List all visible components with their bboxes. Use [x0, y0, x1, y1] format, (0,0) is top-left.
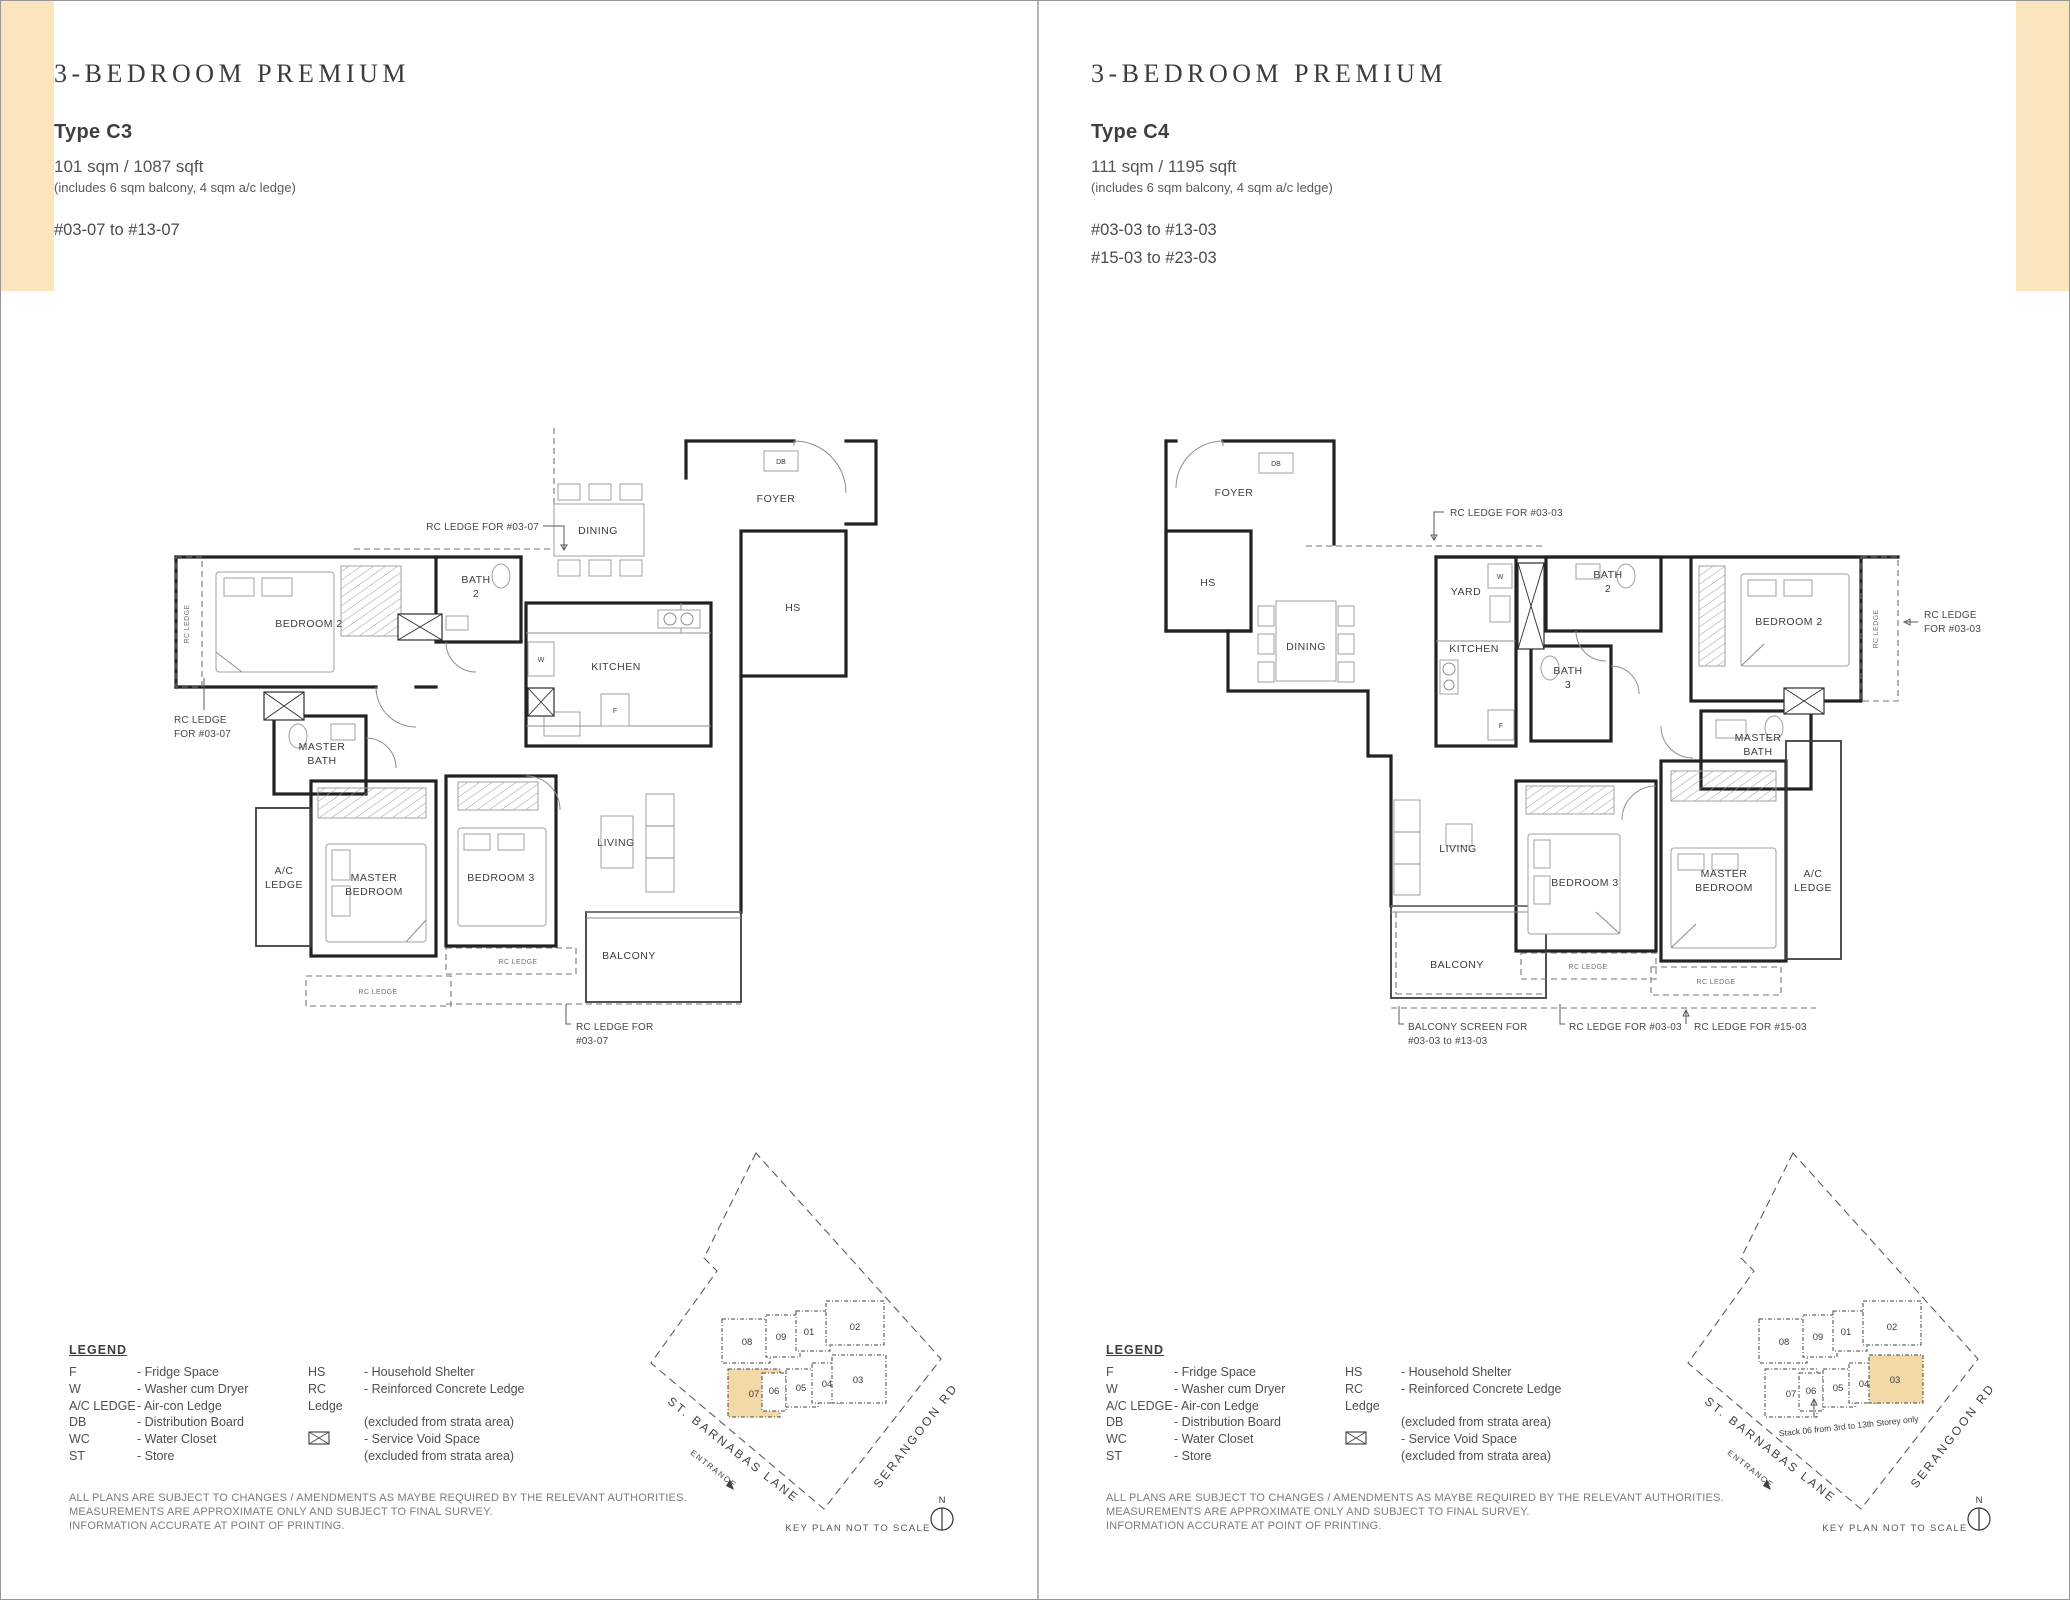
- annotation-rc-ledge-bottom-1: RC LEDGE FOR: [576, 1022, 653, 1033]
- room-label-master-bedroom-1: MASTER: [351, 872, 398, 884]
- room-label-foyer: FOYER: [1215, 487, 1254, 499]
- unit-area-note: (includes 6 sqm balcony, 4 sqm a/c ledge…: [54, 180, 694, 195]
- sink: [446, 616, 468, 630]
- service-void-icon: [308, 1431, 330, 1445]
- unit-03: 03: [1890, 1375, 1901, 1386]
- page-corner-tab-left: [1, 1, 54, 291]
- disclaimer-line: INFORMATION ACCURATE AT POINT OF PRINTIN…: [1106, 1520, 1746, 1534]
- service-void-icon: [398, 614, 442, 640]
- sink: [331, 724, 355, 740]
- wardrobe: [341, 566, 401, 636]
- unit-04: 04: [822, 1379, 833, 1390]
- unit-type-label: Type C4: [1091, 121, 1731, 144]
- annotation-rc-ledge-right-2: FOR #03-03: [1924, 624, 1981, 635]
- legend-heading: LEGEND: [69, 1343, 629, 1357]
- room-label-ac-ledge-1: A/C: [1803, 868, 1822, 880]
- room-label-fridge: F: [613, 708, 617, 715]
- annotation-rc-ledge-bottom-2: #03-07: [576, 1036, 609, 1047]
- stack-range: #03-03 to #13-03: [1091, 216, 1731, 244]
- sofa: [1394, 800, 1420, 895]
- svg-text:N: N: [1976, 1495, 1983, 1506]
- wardrobe: [1699, 566, 1725, 666]
- room-label-balcony: BALCONY: [1430, 959, 1484, 971]
- room-label-master-bath-1: MASTER: [1735, 732, 1782, 744]
- wardrobe: [458, 782, 538, 810]
- legend-row-rc-note: (excluded from strata area): [1401, 1414, 1665, 1431]
- room-label-bath3-num: 3: [1565, 679, 1571, 691]
- room-label-bath2: BATH: [1593, 569, 1622, 581]
- service-void-icon: [1345, 1431, 1367, 1445]
- room-label-bedroom3: BEDROOM 3: [467, 872, 535, 884]
- header-c3: 3-BEDROOM PREMIUM Type C3 101 sqm / 1087…: [54, 59, 694, 244]
- floor-plan-c3: FOYER DB HS DINING BATH 2 KITCHEN W F BE…: [146, 426, 886, 1056]
- service-void-icon: [1784, 688, 1824, 714]
- disclaimer-line: MEASUREMENTS ARE APPROXIMATE ONLY AND SU…: [1106, 1506, 1746, 1520]
- wardrobe: [1671, 771, 1776, 801]
- service-duct: [1518, 563, 1544, 649]
- room-label-balcony: BALCONY: [602, 950, 656, 962]
- brochure-page: 3-BEDROOM PREMIUM Type C3 101 sqm / 1087…: [0, 0, 2070, 1600]
- key-plan-note: KEY PLAN NOT TO SCALE: [785, 1523, 930, 1534]
- legend-row-hs: HS- Household Shelter: [308, 1364, 628, 1381]
- page-title: 3-BEDROOM PREMIUM: [54, 59, 694, 89]
- stack-ranges: #03-03 to #13-03 #15-03 to #23-03: [1091, 216, 1731, 272]
- room-label-washer: W: [1497, 574, 1504, 581]
- room-label-hs: HS: [1200, 577, 1216, 589]
- room-label-hs: HS: [785, 602, 801, 614]
- disclaimer-c3: ALL PLANS ARE SUBJECT TO CHANGES / AMEND…: [69, 1492, 709, 1533]
- annotation-balcony-screen-2: #03-03 to #13-03: [1408, 1036, 1488, 1047]
- unit-08: 08: [1779, 1337, 1790, 1348]
- unit-03: 03: [853, 1375, 864, 1386]
- room-label-rc-ledge-vertical: RC LEDGE: [1873, 610, 1880, 649]
- room-label-dining: DINING: [578, 525, 618, 537]
- legend-c4: LEGEND F- Fridge Space W- Washer cum Dry…: [1106, 1343, 1666, 1465]
- unit-02: 02: [1887, 1322, 1898, 1333]
- unit-04: 04: [1859, 1379, 1870, 1390]
- unit-area: 101 sqm / 1087 sqft: [54, 157, 694, 177]
- service-void-icon: [528, 688, 554, 716]
- unit-09: 09: [1813, 1332, 1824, 1343]
- legend-row-service-void: - Service Void Space: [1345, 1431, 1665, 1448]
- room-label-master-bath-1: MASTER: [299, 741, 346, 753]
- stack-range: #03-07 to #13-07: [54, 216, 694, 244]
- room-label-master-bath-2: BATH: [307, 755, 336, 767]
- unit-01: 01: [1841, 1327, 1852, 1338]
- sink: [1490, 596, 1510, 622]
- room-label-living: LIVING: [1439, 843, 1476, 855]
- svg-text:N: N: [939, 1495, 946, 1506]
- service-voids: [1784, 688, 1824, 714]
- unit-06: 06: [769, 1386, 780, 1397]
- unit-01: 01: [804, 1327, 815, 1338]
- legend-row-sv-note: (excluded from strata area): [364, 1448, 628, 1465]
- room-label-bedroom3: BEDROOM 3: [1551, 877, 1619, 889]
- room-label-ac-ledge-2: LEDGE: [265, 879, 303, 891]
- room-label-fridge: F: [1499, 723, 1503, 730]
- legend-row-rc: RC Ledge- Reinforced Concrete Ledge: [1345, 1381, 1665, 1415]
- room-label-master-bedroom-1: MASTER: [1701, 868, 1748, 880]
- rc-ledge-small: RC LEDGE: [1569, 964, 1608, 971]
- legend-c3: LEGEND F- Fridge Space W- Washer cum Dry…: [69, 1343, 629, 1465]
- room-label-foyer: FOYER: [757, 493, 796, 505]
- room-label-db: DB: [1271, 461, 1281, 468]
- room-label-bath2-num: 2: [1605, 583, 1611, 595]
- stack-range: #15-03 to #23-03: [1091, 244, 1731, 272]
- rc-ledge-small: RC LEDGE: [499, 959, 538, 966]
- room-label-bedroom2: BEDROOM 2: [275, 618, 343, 630]
- annotation-rc-ledge-right-1: RC LEDGE: [1924, 610, 1977, 621]
- unit-05: 05: [1833, 1383, 1844, 1394]
- rc-ledge-small: RC LEDGE: [1697, 979, 1736, 986]
- unit-07: 07: [749, 1389, 760, 1400]
- annotation-rc-ledge-left-1: RC LEDGE: [174, 715, 227, 726]
- room-label-master-bath-2: BATH: [1743, 746, 1772, 758]
- unit-02: 02: [850, 1322, 861, 1333]
- room-label-bath3: BATH: [1553, 665, 1582, 677]
- unit-09: 09: [776, 1332, 787, 1343]
- header-c4: 3-BEDROOM PREMIUM Type C4 111 sqm / 1195…: [1091, 59, 1731, 272]
- unit-type-label: Type C3: [54, 121, 694, 144]
- room-label-kitchen: KITCHEN: [591, 661, 641, 673]
- unit-area-note: (includes 6 sqm balcony, 4 sqm a/c ledge…: [1091, 180, 1731, 195]
- annotation-rc-ledge-bottom-right: RC LEDGE FOR #15-03: [1694, 1022, 1807, 1033]
- service-void-icon: [264, 692, 304, 720]
- unit-area: 111 sqm / 1195 sqft: [1091, 157, 1731, 177]
- north-arrow-icon: N: [931, 1495, 953, 1530]
- disclaimer-line: ALL PLANS ARE SUBJECT TO CHANGES / AMEND…: [1106, 1492, 1746, 1506]
- north-arrow-icon: N: [1968, 1495, 1990, 1530]
- room-label-living: LIVING: [597, 837, 634, 849]
- annotation-balcony-screen-1: BALCONY SCREEN FOR: [1408, 1022, 1528, 1033]
- wardrobe: [318, 788, 426, 818]
- toilet: [492, 564, 510, 588]
- room-label-dining: DINING: [1286, 641, 1326, 653]
- legend-col2: HS- Household Shelter RC Ledge- Reinforc…: [1345, 1364, 1665, 1465]
- page-title: 3-BEDROOM PREMIUM: [1091, 59, 1731, 89]
- room-label-washer: W: [538, 657, 545, 664]
- unit-06: 06: [1806, 1386, 1817, 1397]
- room-label-master-bedroom-2: BEDROOM: [345, 886, 403, 898]
- room-label-bedroom2: BEDROOM 2: [1755, 616, 1823, 628]
- legend-row-service-void: - Service Void Space: [308, 1431, 628, 1448]
- legend-row-rc: RC Ledge- Reinforced Concrete Ledge: [308, 1381, 628, 1415]
- floor-plan-c4: FOYER DB HS DINING YARD W KITCHEN F BATH…: [1156, 426, 1986, 1056]
- legend-heading: LEGEND: [1106, 1343, 1666, 1357]
- room-label-ac-ledge-1: A/C: [274, 865, 293, 877]
- room-label-bath2-num: 2: [473, 588, 479, 600]
- disclaimer-line: INFORMATION ACCURATE AT POINT OF PRINTIN…: [69, 1520, 709, 1534]
- legend-row-rc-note: (excluded from strata area): [364, 1414, 628, 1431]
- key-plan-note: KEY PLAN NOT TO SCALE: [1822, 1523, 1967, 1534]
- annotation-rc-ledge-top: RC LEDGE FOR #03-03: [1450, 508, 1563, 519]
- room-label-ac-ledge-2: LEDGE: [1794, 882, 1832, 894]
- unit-05: 05: [796, 1383, 807, 1394]
- room-label-rc-ledge-vertical: RC LEDGE: [184, 605, 191, 644]
- wardrobe: [1526, 786, 1614, 814]
- unit-08: 08: [742, 1337, 753, 1348]
- legend-col2: HS- Household Shelter RC Ledge- Reinforc…: [308, 1364, 628, 1465]
- room-label-master-bedroom-2: BEDROOM: [1695, 882, 1753, 894]
- disclaimer-c4: ALL PLANS ARE SUBJECT TO CHANGES / AMEND…: [1106, 1492, 1746, 1533]
- disclaimer-line: ALL PLANS ARE SUBJECT TO CHANGES / AMEND…: [69, 1492, 709, 1506]
- disclaimer-line: MEASUREMENTS ARE APPROXIMATE ONLY AND SU…: [69, 1506, 709, 1520]
- annotation-rc-ledge-left-2: FOR #03-07: [174, 729, 231, 740]
- room-label-db: DB: [776, 459, 786, 466]
- building-units: 08 09 01 02 07 06 05 04 03: [722, 1301, 886, 1417]
- room-label-bath2: BATH: [461, 574, 490, 586]
- annotation-rc-ledge-bottom-left: RC LEDGE FOR #03-03: [1569, 1022, 1682, 1033]
- building-units: 08 09 01 02 07 06 05 04 03: [1759, 1301, 1923, 1417]
- room-label-kitchen: KITCHEN: [1449, 643, 1499, 655]
- annotation-rc-ledge-top: RC LEDGE FOR #03-07: [426, 522, 539, 533]
- sofa: [646, 794, 674, 892]
- unit-07: 07: [1786, 1389, 1797, 1400]
- page-corner-tab-right: [2016, 1, 2069, 291]
- legend-row-hs: HS- Household Shelter: [1345, 1364, 1665, 1381]
- panel-divider: [1037, 1, 1039, 1599]
- legend-row-sv-note: (excluded from strata area): [1401, 1448, 1665, 1465]
- room-label-yard: YARD: [1451, 586, 1481, 598]
- rc-ledge-small: RC LEDGE: [359, 989, 398, 996]
